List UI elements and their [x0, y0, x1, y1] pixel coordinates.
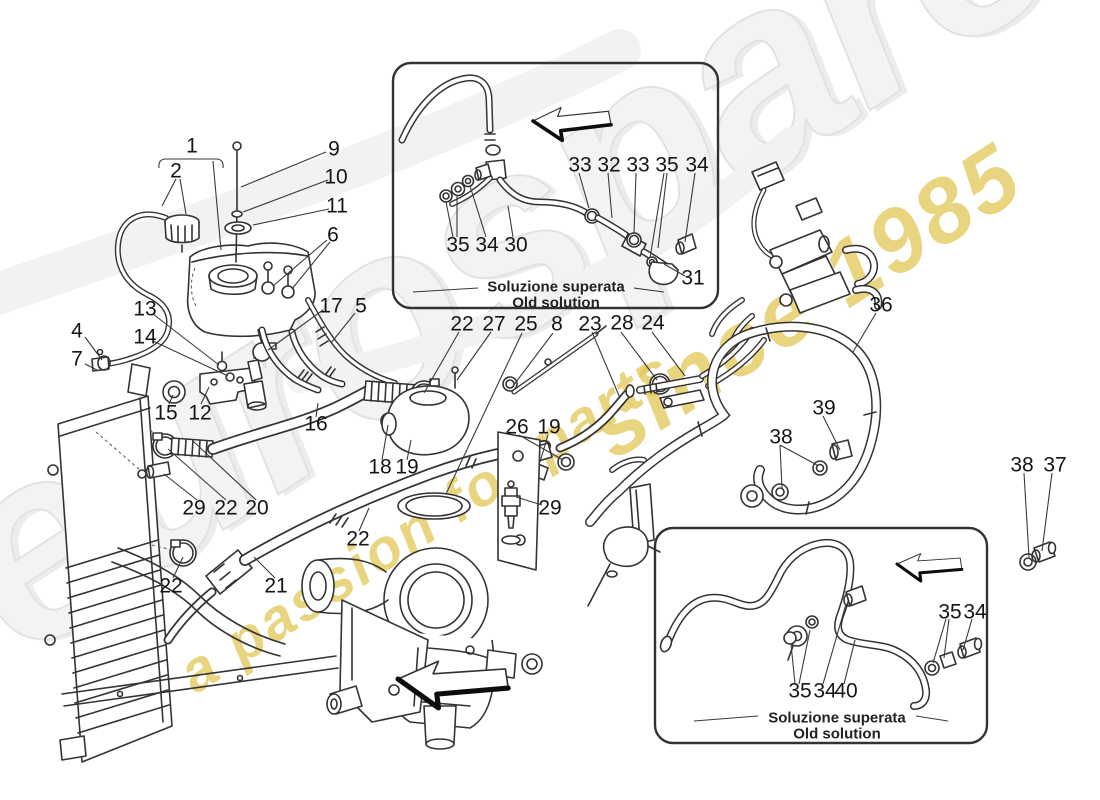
callout-18: 18 — [368, 457, 391, 478]
callout-38: 38 — [1010, 455, 1033, 476]
callout-34: 34 — [813, 681, 836, 702]
callout-35: 35 — [655, 155, 678, 176]
callout-5: 5 — [355, 296, 367, 317]
callout-31: 31 — [681, 268, 704, 289]
callout-22: 22 — [214, 498, 237, 519]
callout-33: 33 — [626, 155, 649, 176]
callout-layer: 1291011647131417515121629222022212227258… — [0, 0, 1100, 800]
callout-13: 13 — [133, 299, 156, 320]
callout-15: 15 — [154, 403, 177, 424]
callout-19: 19 — [395, 457, 418, 478]
callout-4: 4 — [71, 321, 83, 342]
inset-bottom-caption-italian: Soluzione superata — [768, 710, 906, 727]
callout-22: 22 — [346, 529, 369, 550]
callout-20: 20 — [245, 498, 268, 519]
callout-34: 34 — [963, 602, 986, 623]
callout-34: 34 — [685, 155, 708, 176]
callout-9: 9 — [328, 139, 340, 160]
callout-24: 24 — [641, 313, 664, 334]
parts-diagram-page: eurospares a passion for parts since 198… — [0, 0, 1100, 800]
inset-top-caption-italian: Soluzione superata — [487, 279, 625, 296]
callout-7: 7 — [71, 349, 83, 370]
callout-30: 30 — [504, 235, 527, 256]
callout-22: 22 — [159, 576, 182, 597]
callout-1: 1 — [186, 136, 198, 157]
callout-35: 35 — [788, 681, 811, 702]
callout-35: 35 — [938, 602, 961, 623]
callout-23: 23 — [578, 314, 601, 335]
callout-37: 37 — [1043, 455, 1066, 476]
callout-16: 16 — [304, 414, 327, 435]
callout-27: 27 — [482, 314, 505, 335]
callout-39: 39 — [812, 398, 835, 419]
callout-34: 34 — [475, 235, 498, 256]
callout-6: 6 — [327, 225, 339, 246]
callout-8: 8 — [551, 314, 563, 335]
callout-17: 17 — [319, 296, 342, 317]
callout-33: 33 — [568, 155, 591, 176]
callout-38: 38 — [769, 427, 792, 448]
inset-top-caption-english: Old solution — [512, 295, 600, 312]
callout-40: 40 — [834, 681, 857, 702]
callout-10: 10 — [324, 167, 347, 188]
callout-35: 35 — [446, 235, 469, 256]
callout-11: 11 — [326, 196, 348, 217]
callout-12: 12 — [188, 403, 211, 424]
callout-14: 14 — [133, 327, 156, 348]
callout-26: 26 — [505, 417, 528, 438]
callout-2: 2 — [170, 161, 182, 182]
callout-29: 29 — [538, 498, 561, 519]
callout-19: 19 — [537, 417, 560, 438]
callout-21: 21 — [264, 576, 287, 597]
callout-36: 36 — [869, 295, 892, 316]
callout-29: 29 — [182, 498, 205, 519]
callout-32: 32 — [597, 155, 620, 176]
inset-bottom-caption-english: Old solution — [793, 726, 881, 743]
callout-28: 28 — [610, 313, 633, 334]
callout-22: 22 — [450, 314, 473, 335]
callout-25: 25 — [514, 314, 537, 335]
